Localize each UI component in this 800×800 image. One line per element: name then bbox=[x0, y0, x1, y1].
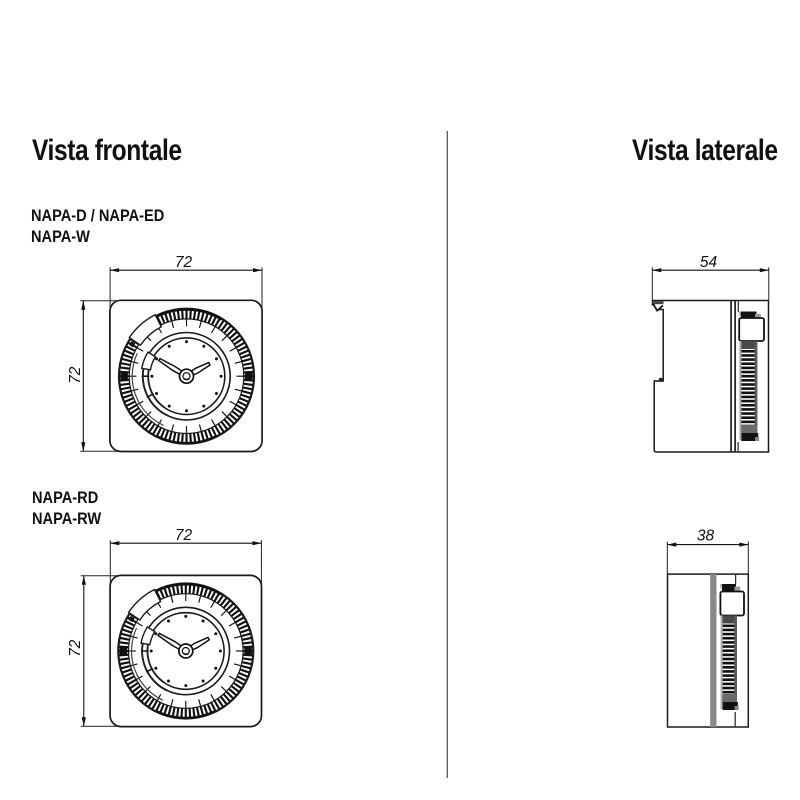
svg-text:72: 72 bbox=[67, 366, 84, 384]
svg-text:72: 72 bbox=[175, 254, 193, 271]
svg-text:72: 72 bbox=[67, 639, 84, 657]
svg-text:54: 54 bbox=[700, 254, 718, 271]
svg-text:72: 72 bbox=[175, 527, 193, 544]
svg-text:38: 38 bbox=[697, 528, 715, 545]
